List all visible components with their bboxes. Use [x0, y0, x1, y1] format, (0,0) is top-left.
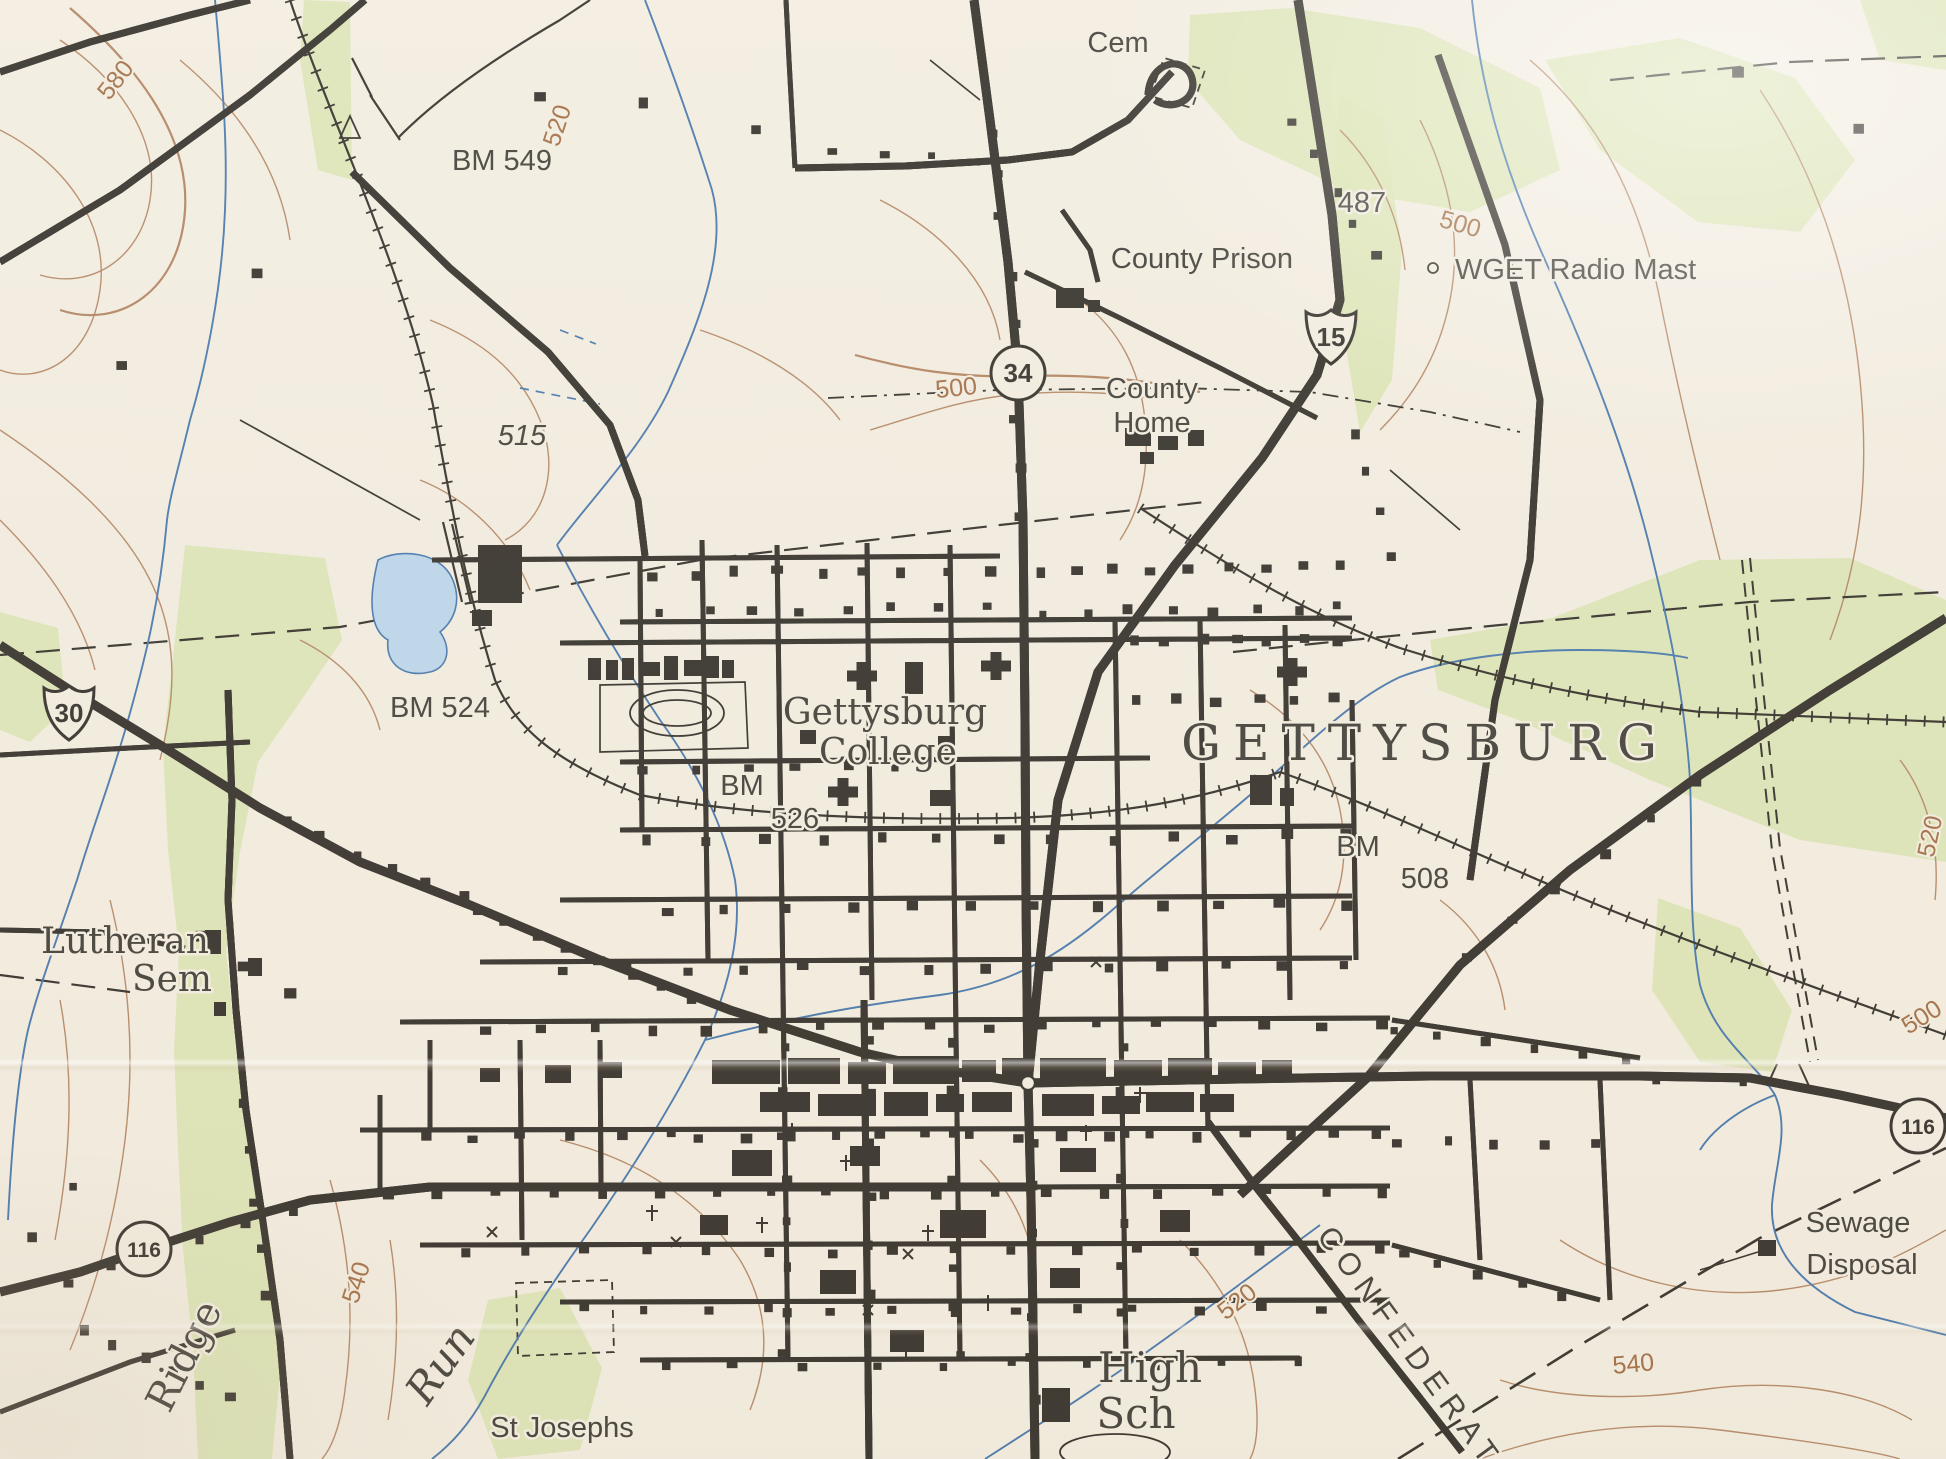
- label-elev-515: 515: [498, 420, 547, 452]
- contour-label-540-left: 540: [337, 1258, 377, 1306]
- us-route-30-shield: 30: [44, 686, 94, 740]
- contour-label-500-topright: 500: [1436, 205, 1484, 243]
- label-elev-508: 508: [1401, 863, 1449, 895]
- label-sewage-1: Sewage: [1806, 1207, 1911, 1239]
- label-city-gettysburg: GETTYSBURG: [1181, 714, 1669, 772]
- contour-label-520-top: 520: [538, 101, 578, 149]
- contour-label-580: 580: [92, 55, 140, 105]
- label-bm-college: BM: [720, 770, 764, 802]
- topo-map: 30 15 34 116 116 Cem BM 549 580 520 487 …: [0, 0, 1946, 1459]
- state-route-116-east-shield: 116: [1891, 1099, 1945, 1153]
- label-high-school-2: Sch: [1096, 1389, 1175, 1438]
- state-route-34-shield: 34: [991, 346, 1045, 400]
- label-bm549: BM 549: [452, 145, 552, 177]
- label-cemetery: Cem: [1087, 27, 1148, 59]
- label-wget-radio-mast: WGET Radio Mast: [1455, 254, 1696, 286]
- town-square-icon: [1021, 1076, 1035, 1090]
- label-stream-run: Run: [395, 1315, 485, 1414]
- shield-number: 30: [55, 698, 84, 728]
- label-bm524: BM 524: [390, 692, 490, 724]
- shield-number: 116: [127, 1239, 161, 1262]
- label-county-home-1: County: [1106, 373, 1198, 405]
- label-bm-east: BM: [1336, 831, 1380, 863]
- shield-number: 15: [1317, 322, 1346, 352]
- shield-number: 34: [1004, 358, 1033, 388]
- label-high-school-1: High: [1098, 1343, 1202, 1392]
- label-confederate-ave: CONFEDERATE: [1310, 1220, 1526, 1459]
- contour-label-520-se: 520: [1212, 1278, 1262, 1326]
- label-county-prison: County Prison: [1111, 243, 1293, 275]
- state-route-116-west-shield: 116: [117, 1222, 171, 1276]
- pond: [372, 554, 457, 674]
- label-gettysburg-college-1: Gettysburg: [783, 692, 987, 733]
- label-sewage-2: Disposal: [1806, 1249, 1917, 1281]
- label-county-home-2: Home: [1113, 407, 1190, 439]
- contour-label-540-se: 540: [1611, 1348, 1655, 1380]
- stadium-track-icon: [630, 690, 724, 736]
- label-st-josephs: St Josephs: [490, 1412, 633, 1444]
- topo-map-canvas: 30 15 34 116 116 Cem BM 549 580 520 487 …: [0, 0, 1946, 1459]
- label-lutheran-2: Sem: [132, 959, 212, 1000]
- label-lutheran-1: Lutheran: [41, 921, 209, 962]
- contour-label-500-mid: 500: [934, 372, 978, 404]
- label-gettysburg-college-2: College: [819, 732, 957, 773]
- radio-mast-icon: [1428, 263, 1438, 273]
- label-elev-487: 487: [1338, 187, 1386, 219]
- shield-number: 116: [1901, 1116, 1935, 1139]
- label-elev-526: 526: [771, 803, 819, 835]
